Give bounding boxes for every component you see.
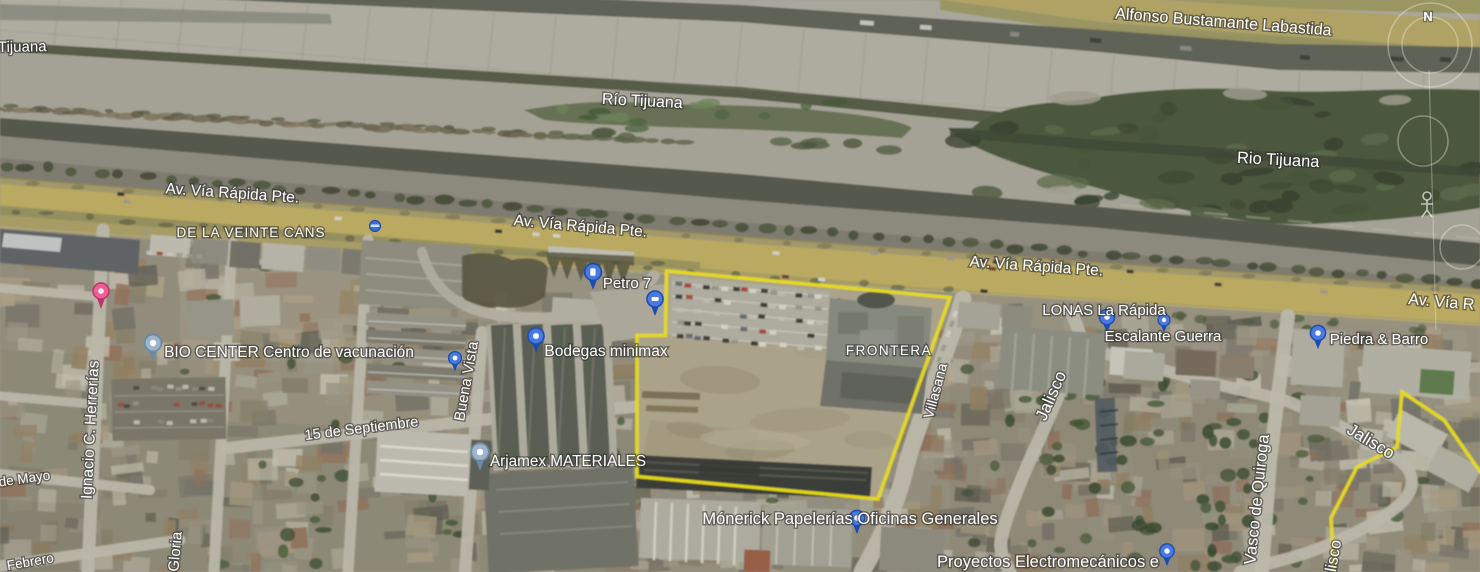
svg-text:LONAS La Rápida: LONAS La Rápida	[1042, 302, 1166, 319]
svg-text:Gloria: Gloria	[165, 530, 185, 572]
svg-text:Bodegas minimax: Bodegas minimax	[544, 343, 667, 360]
svg-text:Piedra & Barro: Piedra & Barro	[1330, 331, 1428, 348]
svg-text:Tijuana: Tijuana	[0, 38, 47, 56]
svg-text:Proyectos Electromecánicos e: Proyectos Electromecánicos e	[937, 553, 1159, 571]
svg-text:DE LA VEINTE CANS: DE LA VEINTE CANS	[176, 225, 325, 240]
svg-text:Petro 7: Petro 7	[603, 275, 651, 292]
svg-text:Escalante Guerra: Escalante Guerra	[1105, 328, 1222, 345]
svg-text:BIO CENTER Centro de vacunació: BIO CENTER Centro de vacunación	[164, 344, 414, 361]
svg-text:Mónerick Papelerías Oficinas G: Mónerick Papelerías Oficinas Generales	[702, 510, 997, 528]
svg-text:FRONTERA: FRONTERA	[846, 343, 932, 358]
svg-text:Arjamex MATERIALES: Arjamex MATERIALES	[490, 453, 646, 470]
